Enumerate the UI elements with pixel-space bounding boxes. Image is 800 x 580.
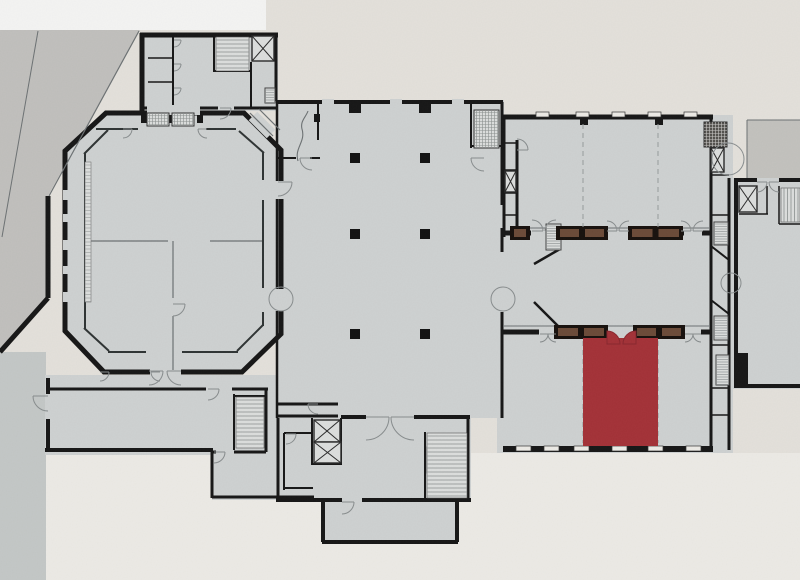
case-panel [659, 229, 680, 237]
case-panel [585, 229, 604, 237]
elevator-icon [314, 420, 340, 442]
grid-area [147, 113, 169, 126]
window-opening [648, 446, 663, 451]
elevator-icon [505, 171, 516, 192]
vent-shaft-icon [714, 222, 728, 245]
stairs-icon [427, 433, 467, 498]
elevator-icon [252, 36, 274, 61]
grid-area [172, 113, 194, 126]
wall-niche [63, 190, 69, 200]
stair-area [216, 37, 249, 71]
case-panel [637, 328, 656, 336]
column [350, 153, 360, 163]
radiator-cap [141, 115, 147, 123]
case-panel [584, 328, 604, 336]
window-opening [544, 446, 559, 451]
column [420, 329, 430, 339]
case-panel [514, 229, 526, 237]
case-panel [662, 328, 681, 336]
central-hall[interactable] [276, 100, 504, 418]
window-opening [684, 112, 697, 117]
display-case [556, 226, 608, 240]
case-panel [558, 328, 578, 336]
highlighted-room[interactable] [583, 331, 658, 446]
shelving-band [85, 162, 91, 302]
display-case [628, 226, 683, 240]
grid-hatch-icon [474, 110, 499, 148]
entrance-porch[interactable] [322, 498, 458, 544]
wall-niche [63, 266, 69, 274]
grid-hatch-icon [172, 113, 194, 126]
elevator-icon [711, 148, 724, 172]
wall-niche [63, 214, 69, 222]
highlighted-room-fill[interactable] [583, 338, 658, 446]
window-opening [516, 446, 531, 451]
wall-niche [63, 292, 69, 302]
wall-block [736, 353, 748, 386]
display-case [633, 325, 685, 339]
radiator-cap [197, 115, 203, 123]
window-opening [648, 112, 661, 117]
wall-niche [63, 240, 69, 250]
display-case [510, 226, 530, 240]
pilaster [314, 114, 320, 122]
shelving-hatch [85, 162, 91, 302]
window-opening [390, 99, 402, 104]
stairs-icon [236, 397, 264, 448]
case-panel [560, 229, 579, 237]
pilaster [580, 117, 588, 125]
display-case [554, 325, 608, 339]
street-strip [0, 352, 46, 580]
floor-plan-canvas [0, 0, 800, 580]
vent-shaft-icon [716, 355, 729, 385]
column [350, 329, 360, 339]
column [420, 229, 430, 239]
grid-hatch-icon [147, 113, 169, 126]
window-opening [612, 446, 627, 451]
case-panel [632, 229, 653, 237]
vent-shaft-icon [265, 88, 275, 103]
window-opening [612, 112, 625, 117]
window-opening [536, 112, 549, 117]
window-opening [576, 112, 589, 117]
window-opening [574, 446, 589, 451]
column [350, 229, 360, 239]
elevator-icon [314, 442, 341, 463]
stairs-icon [781, 188, 800, 222]
vent-shaft-icon [714, 316, 728, 340]
bright-strip [0, 0, 266, 30]
column [420, 153, 430, 163]
stairs-icon [216, 37, 249, 71]
terrace-area [747, 120, 800, 178]
window-opening [322, 99, 334, 104]
window-opening [452, 99, 464, 104]
pilaster [655, 117, 663, 125]
pilaster [349, 103, 361, 113]
window-opening [686, 446, 701, 451]
pilaster [419, 103, 431, 113]
elevator-icon [739, 186, 757, 212]
floor-plan [0, 0, 800, 580]
